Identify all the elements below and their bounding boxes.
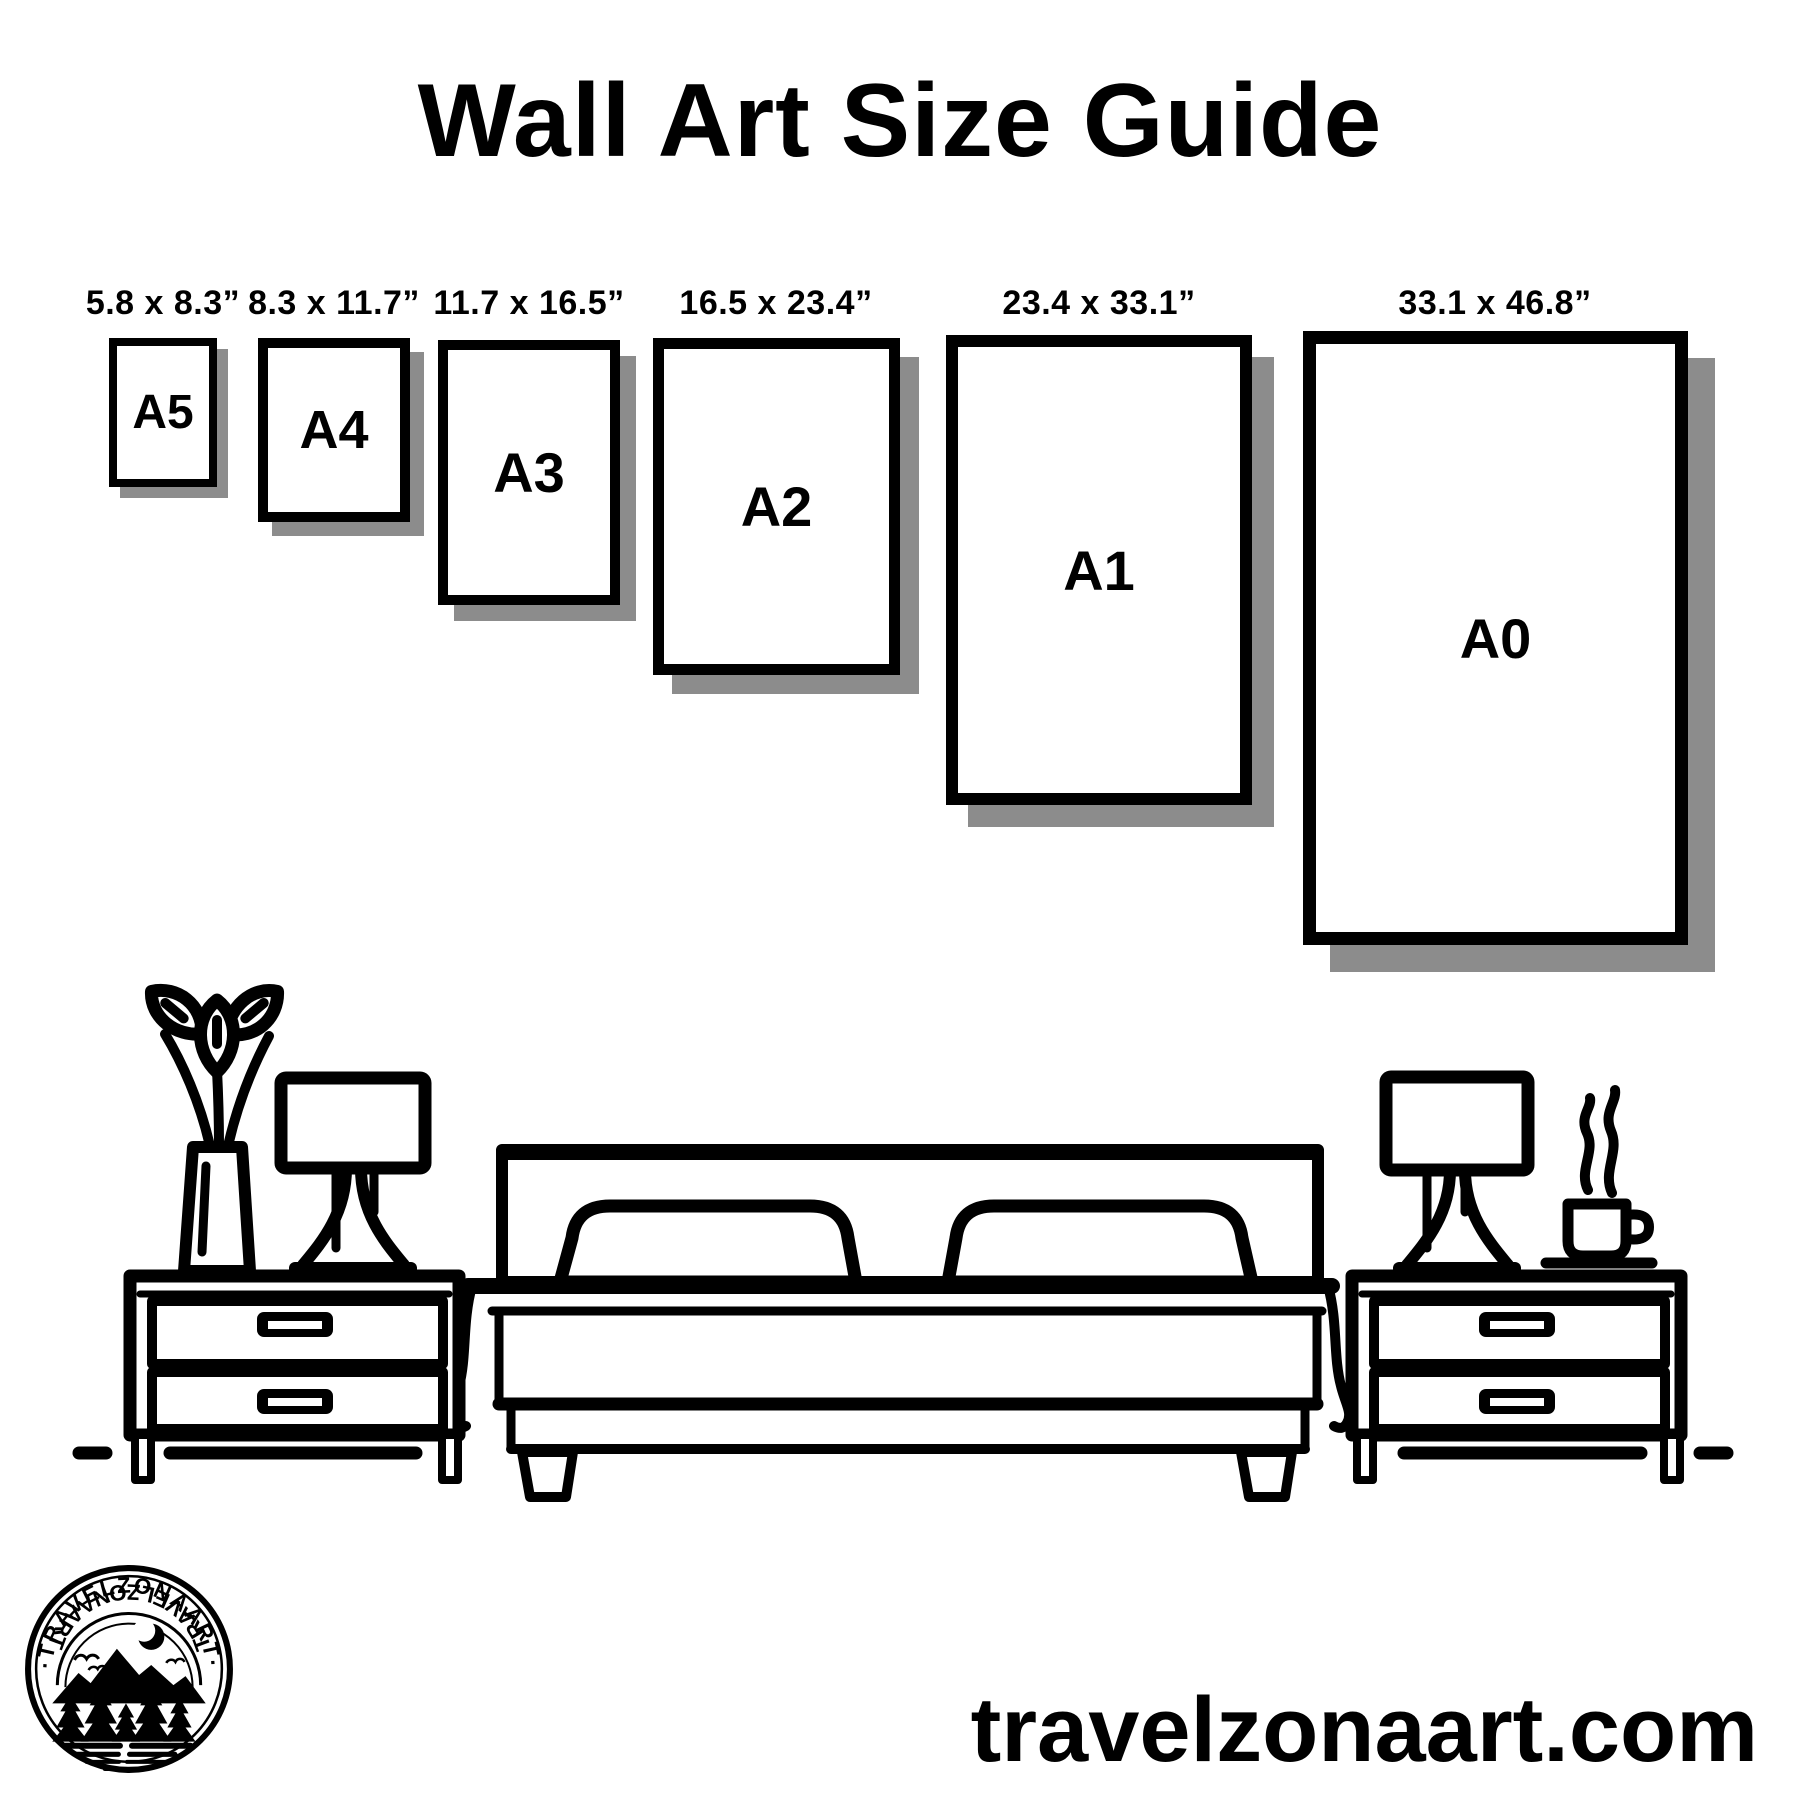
- nightstand-leg: [442, 1435, 458, 1480]
- bed-leg: [522, 1452, 573, 1497]
- vase: [184, 1147, 250, 1271]
- steam-icon: [1609, 1090, 1616, 1193]
- frame-a4: A4: [258, 338, 410, 522]
- frame-a3-label: A3: [493, 440, 565, 505]
- lamp-shade: [1386, 1077, 1528, 1170]
- pillow: [560, 1206, 856, 1282]
- bed-leg: [1241, 1452, 1292, 1497]
- frame-a2-label: A2: [741, 474, 813, 539]
- frame-a0-label: A0: [1460, 606, 1532, 671]
- bed-icon: [451, 1150, 1349, 1497]
- lamp-base: [289, 1262, 417, 1275]
- coffee-cup-icon: [1546, 1090, 1652, 1263]
- lamp-left-icon: [281, 1078, 425, 1275]
- website-text: travelzonaart.com: [971, 1678, 1758, 1783]
- lamp-shade: [281, 1078, 425, 1168]
- frame-a1: A1: [946, 335, 1252, 805]
- lamp-right-icon: [1386, 1077, 1528, 1275]
- bird-icon: [166, 1659, 184, 1663]
- bedroom-scene: [0, 940, 1800, 1540]
- steam-icon: [1584, 1098, 1590, 1190]
- nightstand-leg: [135, 1435, 151, 1480]
- logo-emblem: [52, 1614, 205, 1771]
- frame-a1-label: A1: [1063, 538, 1135, 603]
- frame-a5: A5: [109, 338, 217, 487]
- dimension-label-a1: 23.4 x 33.1”: [899, 284, 1299, 323]
- pillow: [948, 1206, 1252, 1282]
- nightstand-leg: [1357, 1435, 1373, 1480]
- lamp-base: [1393, 1262, 1521, 1275]
- frame-a4-label: A4: [299, 399, 368, 461]
- size-guide-poster: Wall Art Size Guide 5.8 x 8.3” 8.3 x 11.…: [0, 0, 1800, 1800]
- frame-a3: A3: [438, 340, 620, 605]
- nightstand-leg: [1664, 1435, 1680, 1480]
- brand-logo: ·TRAVELZONAART· TRAVELZONAART: [22, 1562, 236, 1776]
- frame-a0: A0: [1303, 331, 1688, 945]
- bird-icon: [74, 1655, 98, 1660]
- plant-icon: [142, 979, 288, 1271]
- cup-body: [1568, 1204, 1626, 1256]
- frame-a2: A2: [653, 338, 900, 675]
- dimension-label-a0: 33.1 x 46.8”: [1295, 284, 1695, 323]
- moon-cutout: [133, 1620, 155, 1642]
- frame-a5-label: A5: [132, 385, 193, 440]
- page-title: Wall Art Size Guide: [0, 62, 1800, 181]
